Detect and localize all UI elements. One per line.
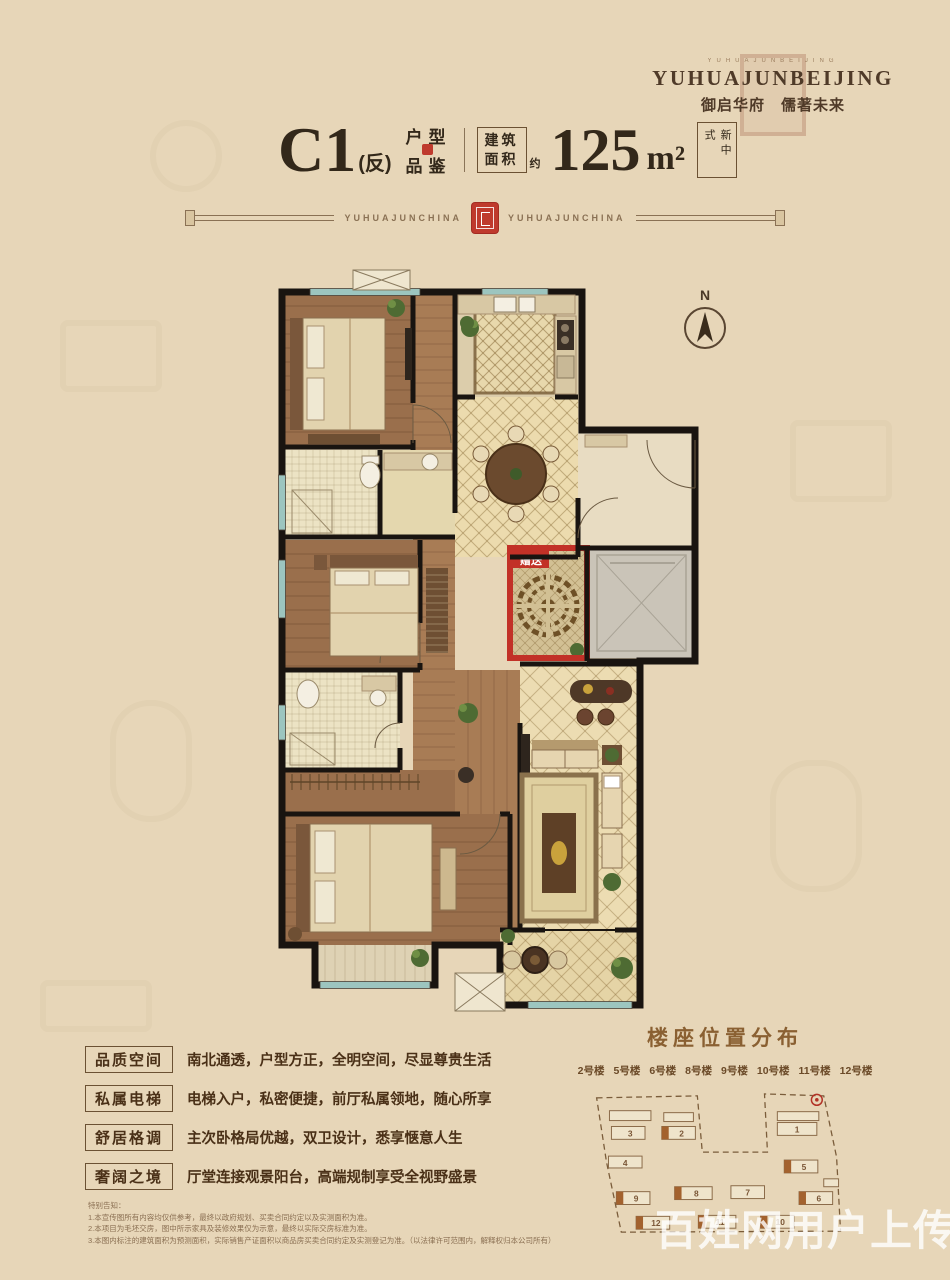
area-value: 125 — [551, 120, 641, 180]
building-item: 5号楼 — [613, 1063, 640, 1078]
background-motif — [110, 700, 192, 822]
disclaimer-line: 1.本宣传图所有内容均仅供参考，最终以政府规划、买卖合同约定以及实测面积为准。 — [88, 1212, 568, 1224]
feature-list: 品质空间 南北通透，户型方正，全明空间，尽显尊贵生活 私属电梯 电梯入户，私密便… — [85, 1046, 505, 1202]
disclaimer: 特别告知： 1.本宣传图所有内容均仅供参考，最终以政府规划、买卖合同约定以及实测… — [88, 1200, 568, 1247]
feature-label: 奢阔之境 — [85, 1163, 173, 1190]
svg-text:2: 2 — [679, 1128, 684, 1138]
svg-text:5: 5 — [802, 1162, 807, 1172]
area-label-box: 建筑 面积 — [477, 127, 527, 173]
feature-row: 舒居格调 主次卧格局优越，双卫设计，悉享惬意人生 — [85, 1124, 505, 1151]
brand-tagline-tiny: YUHUAJUNBEIJING — [638, 58, 908, 64]
wardrobe-rack — [290, 774, 420, 790]
band-endcap-icon — [185, 210, 195, 226]
area-approx: 约 — [530, 155, 541, 171]
background-motif — [790, 420, 892, 502]
feature-label: 品质空间 — [85, 1046, 173, 1073]
unit-type-label: 户型 品鉴 — [402, 121, 454, 179]
svg-text:9: 9 — [634, 1194, 639, 1204]
brand-name-en: YUHUAJUNBEIJING — [638, 66, 908, 91]
background-motif — [60, 320, 162, 392]
entry-console — [585, 435, 627, 447]
brand-seal-icon — [472, 203, 498, 233]
band-line — [195, 215, 334, 221]
unit-type-bottom: 品鉴 — [406, 152, 452, 177]
north-arrow-icon: N — [685, 287, 725, 348]
band-endcap-icon — [775, 210, 785, 226]
feature-desc: 厅堂连接观景阳台，高端规制享受全视野盛景 — [187, 1166, 477, 1187]
disclaimer-line: 3.本图内标注的建筑面积为预测面积，实际销售产证面积以商品房买卖合同约定及实测登… — [88, 1235, 568, 1247]
band-text-right: YUHUAJUNCHINA — [508, 213, 626, 223]
disclaimer-line: 2.本项目为毛坯交房，图中所示家具及装修效果仅为示意，最终以实际交房标准为准。 — [88, 1223, 568, 1235]
building-item: 9号楼 — [721, 1063, 748, 1078]
feature-row: 私属电梯 电梯入户，私密便捷，前厅私属领地，随心所享 — [85, 1085, 505, 1112]
building-item: 12号楼 — [840, 1063, 873, 1078]
band-text-left: YUHUAJUNCHINA — [344, 213, 462, 223]
unit-model-suffix: (反) — [358, 147, 391, 176]
building-item: 2号楼 — [578, 1063, 605, 1078]
band-line — [636, 215, 775, 221]
svg-text:1: 1 — [795, 1124, 800, 1134]
area-unit: m² — [647, 140, 686, 178]
feature-label: 私属电梯 — [85, 1085, 173, 1112]
floor-plan: 赠送 — [270, 268, 730, 1030]
background-motif — [770, 760, 862, 892]
building-item: 6号楼 — [649, 1063, 676, 1078]
svg-text:4: 4 — [623, 1158, 628, 1168]
style-tag: 新中式 — [697, 122, 737, 178]
building-item: 11号楼 — [799, 1063, 831, 1078]
area-label-line2: 面积 — [485, 150, 519, 169]
background-motif — [150, 120, 222, 192]
building-item: 10号楼 — [757, 1063, 790, 1078]
brand-logo: YUHUAJUNBEIJING YUHUAJUNBEIJING 御启华府 儒著未… — [638, 58, 908, 115]
title-divider — [464, 128, 465, 172]
feature-row: 奢阔之境 厅堂连接观景阳台，高端规制享受全视野盛景 — [85, 1163, 505, 1190]
feature-desc: 南北通透，户型方正，全明空间，尽显尊贵生活 — [187, 1049, 492, 1070]
site-marker-icon — [811, 1094, 822, 1105]
feature-desc: 主次卧格局优越，双卫设计，悉享惬意人生 — [187, 1127, 463, 1148]
north-label: N — [700, 287, 710, 303]
svg-text:3: 3 — [628, 1128, 633, 1138]
feature-desc: 电梯入户，私密便捷，前厅私属领地，随心所享 — [187, 1088, 492, 1109]
building-list: 2号楼 5号楼 6号楼 8号楼 9号楼 10号楼 11号楼 12号楼 — [545, 1063, 905, 1078]
background-motif — [40, 980, 152, 1032]
feature-label: 舒居格调 — [85, 1124, 173, 1151]
bedroom2-furniture — [314, 555, 448, 656]
unit-title: C1 (反) 户型 品鉴 建筑 面积 约 125 m² 新中式 — [278, 118, 737, 182]
unit-model: C1 — [278, 118, 356, 182]
watermark: 百姓网用户上传 — [655, 1197, 950, 1258]
brand-name-cn: 御启华府 儒著未来 — [638, 94, 908, 115]
building-item: 8号楼 — [685, 1063, 712, 1078]
area-label-line1: 建筑 — [485, 131, 519, 150]
bonus-area: 赠送 — [510, 548, 587, 658]
disclaimer-heading: 特别告知： — [88, 1200, 568, 1212]
site-location-title: 楼座位置分布 — [545, 1022, 905, 1052]
feature-row: 品质空间 南北通透，户型方正，全明空间，尽显尊贵生活 — [85, 1046, 505, 1073]
decorative-band: YUHUAJUNCHINA YUHUAJUNCHINA — [185, 203, 785, 233]
flyer-page: YUHUAJUNBEIJING YUHUAJUNBEIJING 御启华府 儒著未… — [0, 0, 950, 1280]
